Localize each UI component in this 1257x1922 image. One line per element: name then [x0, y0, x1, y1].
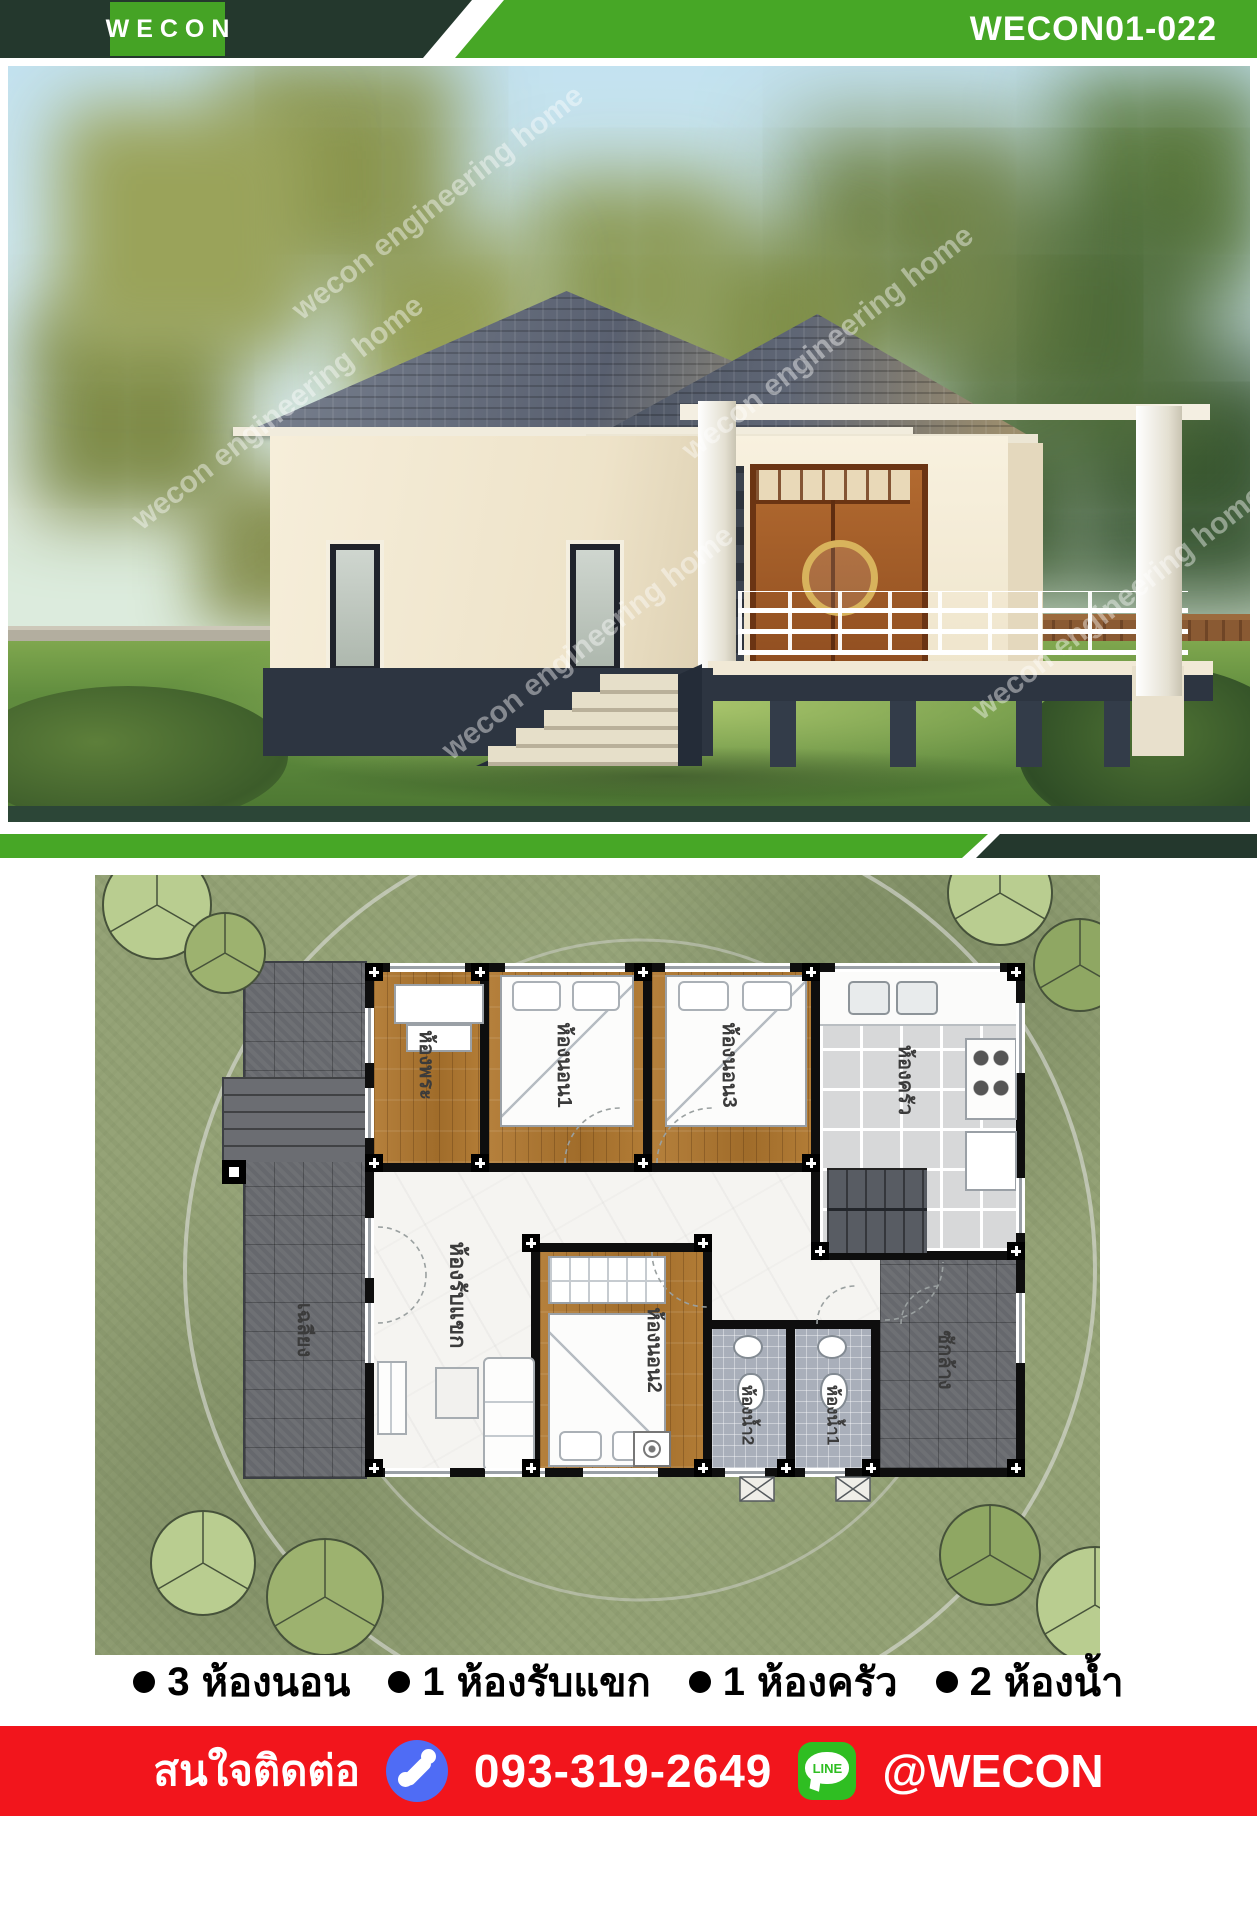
room-label-bedroom2: ห้องนอน2 [639, 1307, 671, 1392]
feature-bathrooms: 2 ห้องน้ำ [936, 1650, 1124, 1714]
room-label-terrace: เฉลียง [289, 1303, 321, 1357]
line-id: @WECON [882, 1744, 1103, 1798]
contact-footer: สนใจติดต่อ 093-319-2649 LINE @WECON [0, 1726, 1257, 1816]
phone-icon [386, 1740, 448, 1802]
feature-bedrooms: 3 ห้องนอน [133, 1650, 350, 1714]
bullet-icon [936, 1671, 958, 1693]
wecon-logo-text: WECON [99, 15, 237, 44]
line-icon-bubble: LINE [805, 1752, 849, 1784]
phone-number: 093-319-2649 [474, 1744, 772, 1798]
door-arc [817, 1286, 855, 1324]
window-left-1 [330, 544, 380, 672]
bullet-icon [388, 1671, 410, 1693]
room-label-kitchen: ห้องครัว [890, 1045, 922, 1115]
stair-step [544, 710, 678, 730]
watermark-text: wecon engineering home [286, 79, 591, 327]
bullet-icon [133, 1671, 155, 1693]
contact-label: สนใจติดต่อ [153, 1738, 360, 1804]
feature-count: 1 [723, 1660, 745, 1705]
room-label-bedroom1: ห้องนอน1 [549, 1022, 581, 1107]
stilt-4 [1104, 701, 1130, 767]
stair-step [516, 728, 678, 748]
door-arc [378, 1275, 426, 1323]
photo-bottom-band [8, 806, 1250, 822]
bullet-icon [689, 1671, 711, 1693]
tree-icon [103, 875, 1100, 1655]
stilt-1 [770, 701, 796, 767]
wecon-logo: WECON [110, 2, 225, 56]
room-label-bath1: ห้องน้ำ1 [820, 1385, 847, 1445]
room-label-bath2: ห้องน้ำ2 [735, 1385, 762, 1445]
door-arc [901, 1286, 939, 1324]
header-bar: WECON WECON01-022 [0, 0, 1257, 58]
feature-label: ห้องรับแขก [457, 1650, 651, 1714]
line-icon-word: LINE [813, 1761, 843, 1776]
plan-decorations [95, 875, 1100, 1655]
feature-label: ห้องครัว [757, 1650, 898, 1714]
model-code: WECON01-022 [970, 0, 1217, 58]
feature-label: ห้องนอน [202, 1650, 351, 1714]
features-row: 3 ห้องนอน 1 ห้องรับแขก 1 ห้องครัว 2 ห้อง… [0, 1656, 1257, 1708]
feature-count: 1 [422, 1660, 444, 1705]
feature-label: ห้องน้ำ [1004, 1650, 1124, 1714]
feature-count: 3 [167, 1660, 189, 1705]
room-label-living: ห้องรับแขก [441, 1242, 476, 1349]
stair-step [600, 674, 678, 694]
stair-step [572, 692, 678, 712]
room-label-bedroom3: ห้องนอน3 [714, 1022, 746, 1107]
flyer-page: WECON WECON01-022 [0, 0, 1257, 1922]
feature-kitchen: 1 ห้องครัว [689, 1650, 898, 1714]
door-arc [378, 1227, 426, 1275]
header-dark-stripe [0, 0, 520, 58]
feature-living: 1 ห้องรับแขก [388, 1650, 650, 1714]
door-arc [657, 1108, 712, 1163]
stilt-3 [1016, 701, 1042, 767]
feature-count: 2 [970, 1660, 992, 1705]
door-arc [565, 1108, 620, 1163]
floor-plan: ห้องพระ ห้องนอน1 ห้องนอน3 ห้องครัว เฉลีย… [95, 875, 1100, 1655]
room-label-laundry: ซักล้าง [930, 1331, 962, 1390]
house-render-photo: wecon engineering home wecon engineering… [8, 66, 1250, 822]
stilt-2 [890, 701, 916, 767]
door-arc [885, 1262, 943, 1320]
door-transom-glass [756, 470, 910, 504]
line-icon: LINE [798, 1742, 856, 1800]
stair-step [488, 746, 678, 766]
door-arc [652, 1252, 707, 1307]
room-label-prayer: ห้องพระ [411, 1030, 443, 1100]
